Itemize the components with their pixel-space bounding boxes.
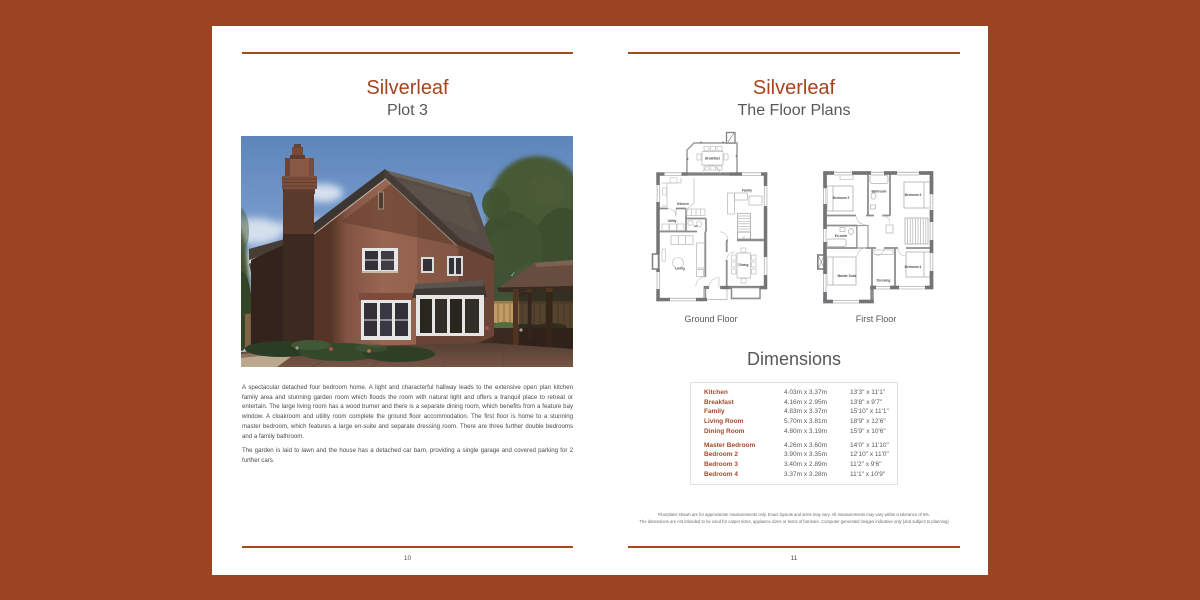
svg-text:Dining: Dining xyxy=(739,263,749,267)
svg-text:Master Suite: Master Suite xyxy=(838,274,857,278)
svg-text:Living: Living xyxy=(675,267,684,271)
svg-text:Bedroom 3: Bedroom 3 xyxy=(905,193,922,197)
svg-text:Bedroom 4: Bedroom 4 xyxy=(905,265,922,269)
svg-text:En-suite: En-suite xyxy=(835,234,848,238)
svg-text:Family: Family xyxy=(742,189,752,193)
svg-text:Dressing: Dressing xyxy=(877,279,891,283)
svg-text:Utility: Utility xyxy=(668,219,677,223)
svg-text:Bedroom 2: Bedroom 2 xyxy=(833,196,850,200)
svg-text:wc: wc xyxy=(693,224,698,228)
svg-text:Breakfast: Breakfast xyxy=(705,157,720,161)
svg-text:Bathroom: Bathroom xyxy=(871,190,886,194)
svg-text:Kitchen: Kitchen xyxy=(677,202,689,206)
